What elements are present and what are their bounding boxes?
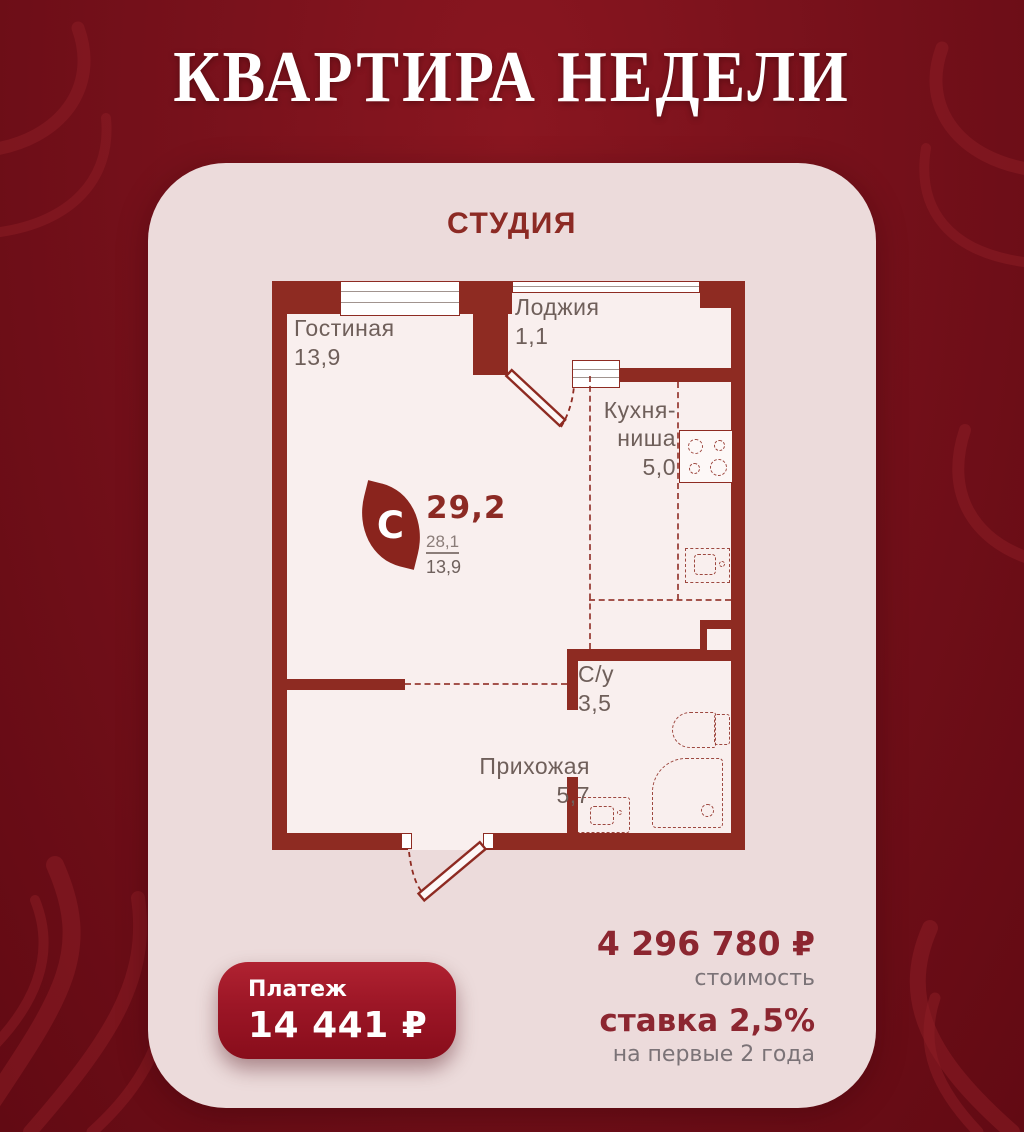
logo-letter: C xyxy=(377,504,404,547)
payment-button[interactable]: Платеж 14 441 ₽ xyxy=(218,962,456,1059)
floor-plan: Гостиная 13,9 Лоджия 1,1 Кухня- ниша 5,0… xyxy=(272,281,746,852)
room-area: 5,0 xyxy=(604,453,676,481)
room-area: 13,9 xyxy=(294,343,395,371)
doors-layer xyxy=(272,281,746,921)
apartment-type-label: СТУДИЯ xyxy=(0,207,1024,241)
total-area: 29,2 xyxy=(426,490,507,526)
rate-label: на первые 2 года xyxy=(597,1042,815,1067)
balcony-door-leaf xyxy=(506,370,565,426)
room-name: Лоджия xyxy=(515,293,600,321)
payment-value: 14 441 ₽ xyxy=(248,1005,456,1046)
entrance-door-arc xyxy=(409,852,424,894)
rate-value: ставка 2,5% xyxy=(597,1003,815,1039)
page-title: КВАРТИРА НЕДЕЛИ xyxy=(0,35,1024,119)
living-area: 13,9 xyxy=(426,557,507,578)
room-name: С/у xyxy=(578,660,614,688)
room-area: 1,1 xyxy=(515,322,600,350)
entrance-door-leaf xyxy=(419,842,486,900)
room-name: Прихожая xyxy=(479,752,590,780)
payment-label: Платеж xyxy=(248,977,456,1002)
room-name: Кухня- xyxy=(604,396,676,424)
room-area: 3,5 xyxy=(578,689,614,717)
room-label-kitchen: Кухня- ниша 5,0 xyxy=(604,396,676,481)
area-summary: 29,2 28,1 13,9 xyxy=(426,490,507,578)
price-block: 4 296 780 ₽ стоимость ставка 2,5% на пер… xyxy=(597,924,815,1067)
price-label: стоимость xyxy=(597,966,815,991)
room-area: 5,7 xyxy=(479,781,590,809)
room-label-hallway: Прихожая 5,7 xyxy=(479,752,590,809)
area-without-loggia: 28,1 xyxy=(426,532,507,552)
room-name: Гостиная xyxy=(294,314,395,342)
room-name: ниша xyxy=(604,424,676,452)
room-label-loggia: Лоджия 1,1 xyxy=(515,293,600,350)
room-label-living: Гостиная 13,9 xyxy=(294,314,395,371)
room-label-bathroom: С/у 3,5 xyxy=(578,660,614,717)
price-value: 4 296 780 ₽ xyxy=(597,924,815,963)
